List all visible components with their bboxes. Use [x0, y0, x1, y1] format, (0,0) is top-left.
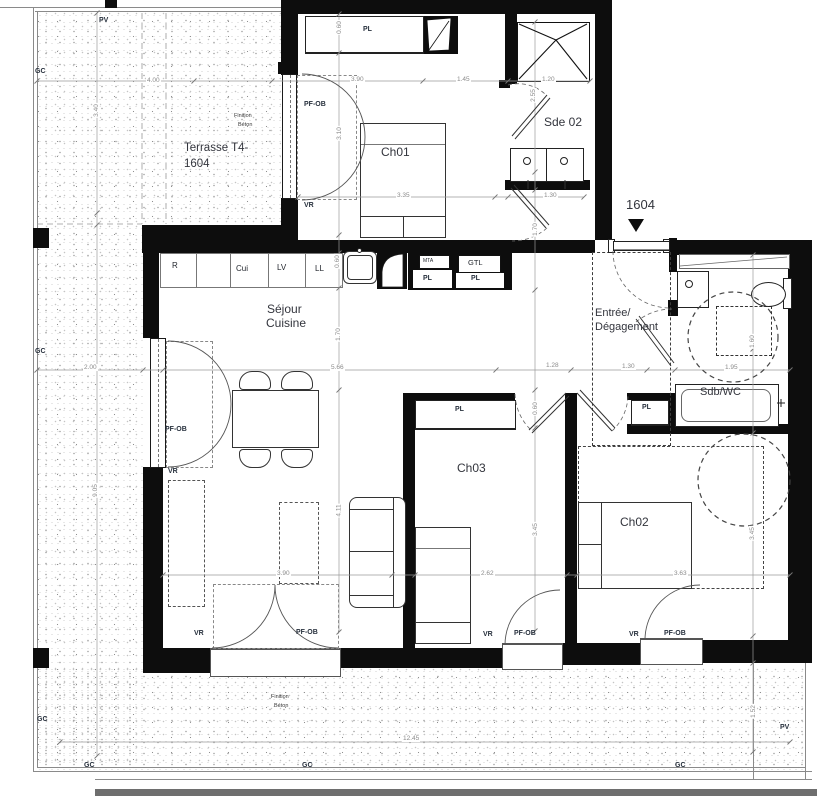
dimension-label: 0.60 — [334, 254, 341, 269]
room-label-entree: Entrée/ — [595, 307, 630, 320]
kitchen-label-mta: MTA — [423, 257, 433, 266]
kitchen-label-cui: Cui — [236, 264, 248, 273]
tag-pl: PL — [471, 275, 480, 283]
floor-plan: Terrasse T4-1604Ch01Sde 02SéjourCuisineE… — [0, 0, 817, 800]
tag-pv: PV — [780, 724, 789, 732]
dimension-label: 3.10 — [336, 126, 343, 141]
dimension-label: 3.40 — [93, 103, 100, 118]
dimension-label: 3.90 — [276, 570, 291, 577]
lot-number-label: 1604 — [626, 198, 655, 211]
dimension-label: 1.60 — [749, 334, 756, 349]
room-label-ch03: Ch03 — [457, 462, 486, 475]
dimension-label: 12.45 — [402, 735, 420, 742]
dimension-label: 2.00 — [83, 364, 98, 371]
room-label-ch02: Ch02 — [620, 516, 649, 529]
dimension-label: 3.45 — [532, 522, 539, 537]
finition-label: Béton — [238, 122, 252, 128]
room-label-sdbwc: Sdb/WC — [700, 386, 741, 399]
dimension-label: 5.66 — [330, 364, 345, 371]
finition-label: Finition — [234, 113, 252, 119]
dimension-label: 9.05 — [92, 483, 99, 498]
dimension-label: 3.63 — [673, 570, 688, 577]
tag-pv: PV — [99, 17, 108, 25]
tag-pl: PL — [423, 275, 432, 283]
room-label-sejour: Séjour — [267, 303, 302, 316]
dimension-label: 1.20 — [541, 76, 556, 83]
tag-vr: VR — [304, 202, 314, 210]
dimension-label: 2.62 — [480, 570, 495, 577]
finition-label: Béton — [274, 703, 288, 709]
room-label-ch01: Ch01 — [381, 146, 410, 159]
tag-pl: PL — [642, 404, 651, 412]
dimension-label: 1.28 — [545, 362, 560, 369]
tag-vr: VR — [194, 630, 204, 638]
room-label-entree: Dégagement — [595, 321, 658, 334]
tag-pl: PL — [363, 26, 372, 34]
tag-pf-ob: PF-OB — [296, 629, 318, 637]
tag-pl: PL — [455, 406, 464, 414]
dimension-label: 1.30 — [543, 192, 558, 199]
tag-gc: GC — [35, 348, 46, 356]
entrance-arrow-icon — [628, 219, 644, 232]
kitchen-label-ll: LL — [315, 264, 324, 273]
tag-vr: VR — [168, 468, 178, 476]
tag-gc: GC — [84, 762, 95, 770]
tag-vr: VR — [629, 631, 639, 639]
tag-gc: GC — [675, 762, 686, 770]
room-label-terrasse: Terrasse T4- — [184, 142, 248, 155]
dimension-label: 2.55 — [530, 88, 537, 103]
dimension-label: 3.35 — [396, 192, 411, 199]
tag-pf-ob: PF-OB — [304, 101, 326, 109]
dimension-label: 1.70 — [532, 222, 539, 237]
dimension-label: 4.11 — [336, 503, 343, 517]
dimension-label: 4.00 — [146, 77, 161, 84]
dimension-label: 3.45 — [749, 526, 756, 541]
kitchen-label-gtl: GTL — [468, 258, 483, 267]
dimension-label: 0.60 — [532, 401, 539, 416]
room-label-terrasse: 1604 — [184, 158, 210, 171]
room-label-cuisine: Cuisine — [266, 317, 306, 330]
finition-label: Finition — [271, 694, 289, 700]
tag-gc: GC — [37, 716, 48, 724]
tag-pf-ob: PF-OB — [514, 630, 536, 638]
tag-gc: GC — [302, 762, 313, 770]
dimension-label: 1.52 — [750, 704, 757, 719]
tag-pf-ob: PF-OB — [664, 630, 686, 638]
dimension-label: 3.90 — [350, 76, 365, 83]
dimension-label: 1.30 — [621, 363, 636, 370]
tag-gc: GC — [35, 68, 46, 76]
tag-pf-ob: PF-OB — [165, 426, 187, 434]
kitchen-label-lv: LV — [277, 263, 286, 272]
dimension-label: 1.45 — [456, 76, 471, 83]
dimension-label: 1.70 — [335, 327, 342, 342]
tag-vr: VR — [483, 631, 493, 639]
plan-linework — [0, 0, 817, 800]
room-label-sde02: Sde 02 — [544, 116, 582, 129]
dimension-label: 1.95 — [724, 364, 739, 371]
dimension-label: 0.60 — [336, 20, 343, 35]
kitchen-label-r: R — [172, 261, 178, 270]
